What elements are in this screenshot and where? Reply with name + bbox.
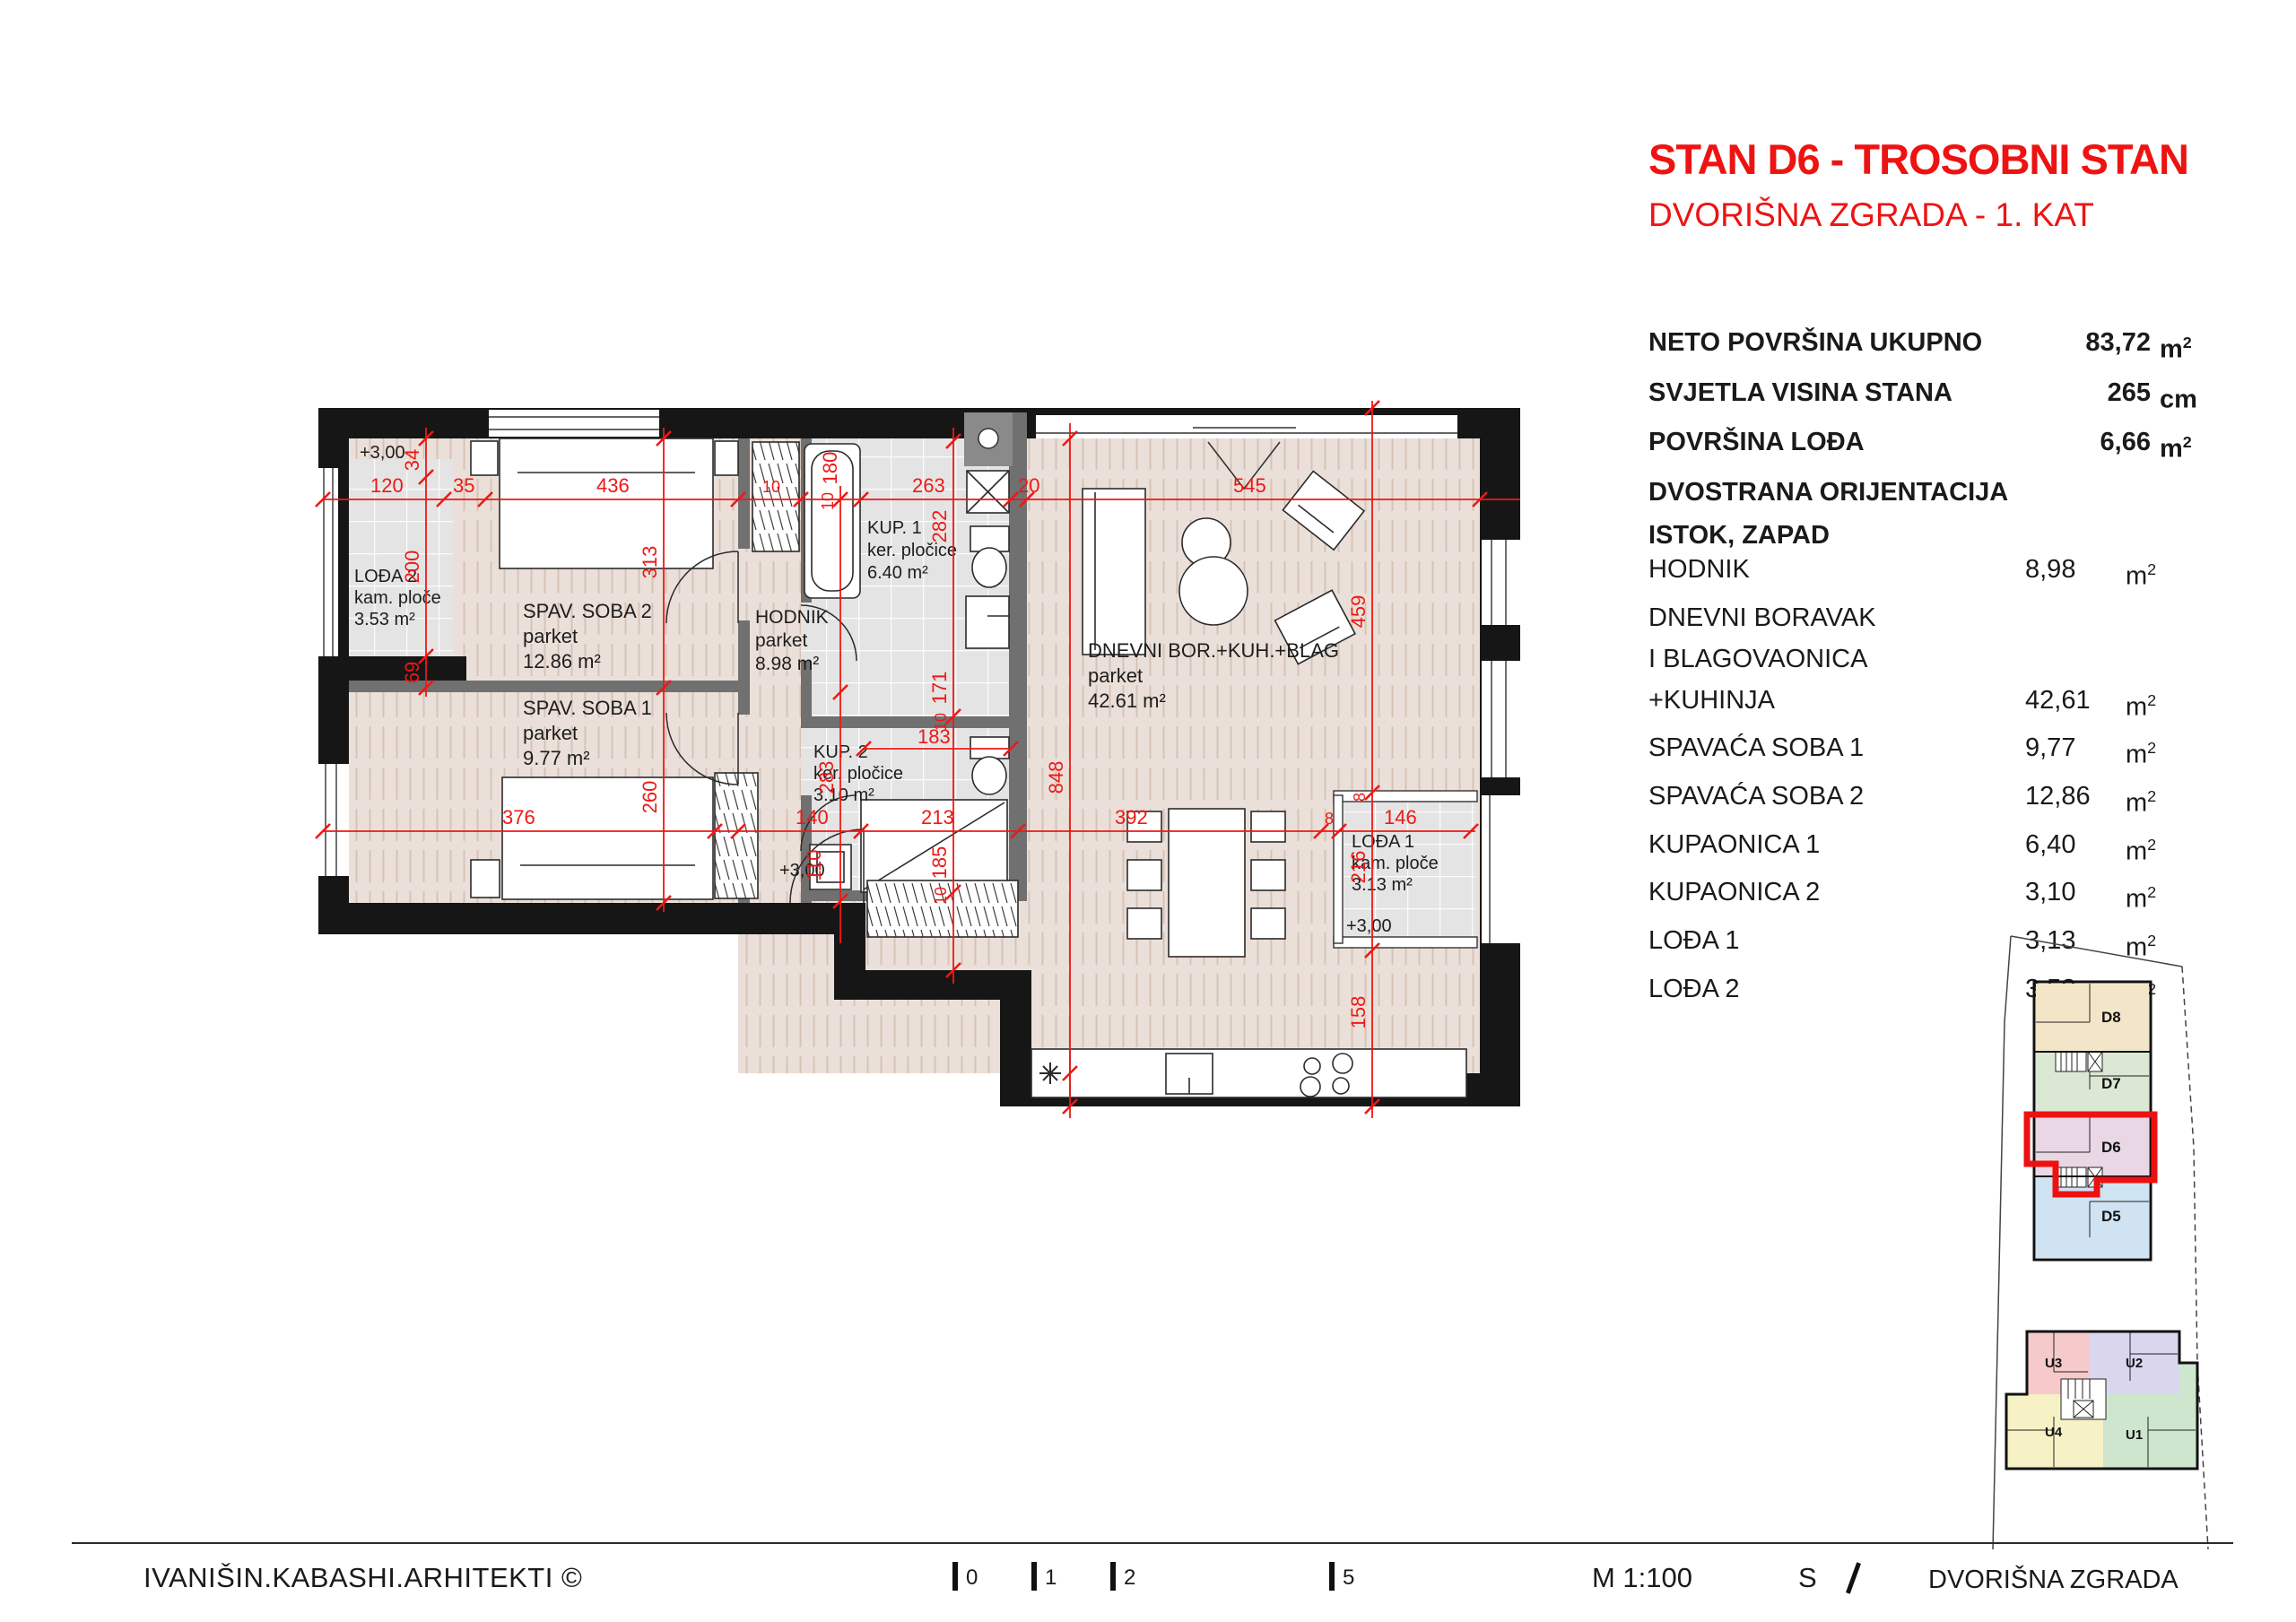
- svg-text:parket: parket: [523, 625, 578, 647]
- svg-text:parket: parket: [1088, 664, 1143, 687]
- soba2-window-icon: [489, 410, 659, 437]
- room-row: HODNIK8,98m2: [1648, 549, 2240, 597]
- svg-text:146: 146: [1384, 806, 1417, 828]
- scale-bar-mark: 5: [1329, 1562, 1354, 1591]
- svg-text:216: 216: [1347, 851, 1370, 884]
- stair-core-icon: [2056, 1052, 2102, 1071]
- stats-block: NETO POVRŠINA UKUPNO 83,72 m2 SVJETLA VI…: [1648, 321, 2240, 557]
- page-subtitle: DVORIŠNA ZGRADA - 1. KAT: [1648, 196, 2258, 234]
- svg-text:283: 283: [815, 761, 838, 794]
- gallery-strip: [1036, 415, 1457, 438]
- svg-text:282: 282: [928, 510, 951, 543]
- svg-text:9.77 m²: 9.77 m²: [523, 747, 590, 769]
- unit-u1: [2103, 1394, 2197, 1469]
- svg-text:459: 459: [1347, 595, 1370, 629]
- svg-text:12.86 m²: 12.86 m²: [523, 650, 601, 672]
- svg-text:8: 8: [1325, 810, 1334, 828]
- stat-row: POVRŠINA LOĐA 6,66 m2: [1648, 421, 2240, 471]
- svg-text:120: 120: [370, 474, 404, 497]
- svg-text:parket: parket: [523, 722, 578, 744]
- svg-text:158: 158: [1347, 996, 1370, 1029]
- svg-text:U2: U2: [2126, 1356, 2143, 1371]
- bed1: [502, 777, 713, 899]
- svg-text:436: 436: [596, 474, 630, 497]
- coffee-table-2: [1179, 557, 1248, 625]
- svg-text:313: 313: [639, 546, 661, 579]
- svg-text:kam. ploče: kam. ploče: [354, 588, 441, 608]
- svg-text:263: 263: [912, 474, 945, 497]
- wc2-icon: [970, 737, 1009, 794]
- svg-text:69: 69: [401, 662, 423, 683]
- svg-text:DNEVNI BOR.+KUH.+BLAG: DNEVNI BOR.+KUH.+BLAG: [1088, 639, 1339, 662]
- svg-text:10: 10: [932, 713, 950, 731]
- svg-text:848: 848: [1045, 761, 1067, 794]
- north-arrow-icon: [1846, 1562, 1861, 1594]
- wc1-icon: [970, 526, 1009, 587]
- svg-text:185: 185: [928, 846, 951, 880]
- svg-text:392: 392: [1115, 806, 1148, 828]
- loggia2-opening-icon: [318, 468, 338, 656]
- svg-text:10: 10: [819, 492, 837, 510]
- room-row: SPAVAĆA SOBA 212,86m2: [1648, 776, 2240, 824]
- north-indicator: S: [1798, 1562, 1856, 1594]
- room-row: KUPAONICA 23,10m2: [1648, 872, 2240, 920]
- svg-text:20: 20: [1018, 474, 1039, 497]
- room-row: SPAVAĆA SOBA 19,77m2: [1648, 727, 2240, 776]
- svg-text:171: 171: [928, 672, 951, 705]
- sofa: [1083, 489, 1145, 655]
- vent-shaft-icon: [978, 429, 998, 448]
- site-minimap: D8 D7 D6 D5: [1955, 932, 2296, 1551]
- svg-text:D7: D7: [2101, 1075, 2121, 1092]
- svg-text:D6: D6: [2101, 1139, 2121, 1156]
- svg-text:LOĐA 1: LOĐA 1: [1352, 832, 1414, 852]
- svg-text:parket: parket: [755, 630, 808, 651]
- building-name: DVORIŠNA ZGRADA: [1928, 1566, 2179, 1595]
- svg-text:KUP. 1: KUP. 1: [867, 518, 922, 538]
- svg-text:180: 180: [819, 452, 841, 485]
- svg-text:SPAV. SOBA 1: SPAV. SOBA 1: [523, 697, 652, 719]
- room-row: DNEVNI BORAVAK: [1648, 597, 2240, 638]
- svg-text:10: 10: [762, 478, 780, 496]
- loggia1-opening-icon: [1482, 795, 1520, 943]
- street-building: U3 U2 U4 U1: [2006, 1331, 2197, 1469]
- scale-bar-mark: 1: [1031, 1562, 1057, 1591]
- stat-row: NETO POVRŠINA UKUPNO 83,72 m2: [1648, 321, 2240, 371]
- architect-credit: IVANIŠIN.KABASHI.ARHITEKTI ©: [143, 1562, 582, 1594]
- svg-text:35: 35: [453, 474, 474, 497]
- floor-plan: LOĐA 2 kam. ploče 3.53 m² +3,00 SPAV. SO…: [309, 392, 1529, 1134]
- oven-icon: [1166, 1054, 1213, 1094]
- svg-text:200: 200: [401, 551, 423, 584]
- kitchen-counter: [1031, 1049, 1466, 1097]
- wardrobe-soba1: [715, 773, 758, 898]
- bed2: [500, 438, 713, 568]
- svg-text:8: 8: [1351, 793, 1369, 802]
- scale-tick-icon: [1110, 1562, 1116, 1591]
- north-label: S: [1798, 1562, 1817, 1594]
- svg-text:+3,00: +3,00: [360, 443, 405, 463]
- room-row: +KUHINJA42,61m2: [1648, 680, 2240, 728]
- scale-tick-icon: [952, 1562, 958, 1591]
- sink1-icon: [966, 596, 1009, 648]
- scale-label: M 1:100: [1592, 1562, 1692, 1594]
- stat-row: SVJETLA VISINA STANA 265 cm: [1648, 371, 2240, 421]
- svg-text:42.61 m²: 42.61 m²: [1088, 690, 1166, 712]
- svg-text:3.53 m²: 3.53 m²: [354, 610, 415, 629]
- svg-text:+3,00: +3,00: [1346, 916, 1392, 936]
- closet-hall: [752, 442, 799, 551]
- svg-text:545: 545: [1233, 474, 1266, 497]
- svg-text:376: 376: [502, 806, 535, 828]
- svg-text:D8: D8: [2101, 1009, 2121, 1026]
- footer-divider: [72, 1542, 2233, 1544]
- svg-text:U4: U4: [2045, 1425, 2063, 1440]
- room-row: I BLAGOVAONICA: [1648, 638, 2240, 680]
- svg-text:260: 260: [639, 781, 661, 814]
- courtyard-building: D8 D7 D6 D5: [2027, 982, 2154, 1260]
- svg-text:6.40 m²: 6.40 m²: [867, 563, 928, 583]
- svg-text:34: 34: [401, 449, 423, 471]
- orientation-line1: DVOSTRANA ORIJENTACIJA: [1648, 471, 2240, 514]
- scale-tick-icon: [1329, 1562, 1335, 1591]
- svg-text:D5: D5: [2101, 1208, 2121, 1225]
- sheet: LOĐA 2 kam. ploče 3.53 m² +3,00 SPAV. SO…: [0, 0, 2296, 1622]
- room-row: KUPAONICA 16,40m2: [1648, 824, 2240, 872]
- svg-text:8.98 m²: 8.98 m²: [755, 654, 819, 674]
- svg-text:U3: U3: [2045, 1356, 2062, 1371]
- living-window-1-icon: [1482, 540, 1520, 625]
- title-block: STAN D6 - TROSOBNI STAN DVORIŠNA ZGRADA …: [1648, 134, 2258, 234]
- scale-bar-mark: 2: [1110, 1562, 1135, 1591]
- svg-text:U1: U1: [2126, 1427, 2143, 1443]
- svg-text:HODNIK: HODNIK: [755, 607, 829, 628]
- svg-text:140: 140: [796, 806, 829, 828]
- washing-machine-icon: [967, 471, 1009, 513]
- svg-text:110: 110: [803, 849, 825, 880]
- unit-d8: [2036, 984, 2149, 1052]
- page-title: STAN D6 - TROSOBNI STAN: [1648, 134, 2258, 184]
- stair-core-icon: [2061, 1379, 2106, 1419]
- svg-text:10: 10: [932, 887, 950, 905]
- scale-bar-mark: 0: [952, 1562, 978, 1591]
- scale-tick-icon: [1031, 1562, 1037, 1591]
- svg-text:213: 213: [921, 806, 954, 828]
- living-window-2-icon: [1482, 661, 1520, 777]
- svg-text:SPAV. SOBA 2: SPAV. SOBA 2: [523, 600, 652, 622]
- soba1-window-icon: [318, 764, 349, 876]
